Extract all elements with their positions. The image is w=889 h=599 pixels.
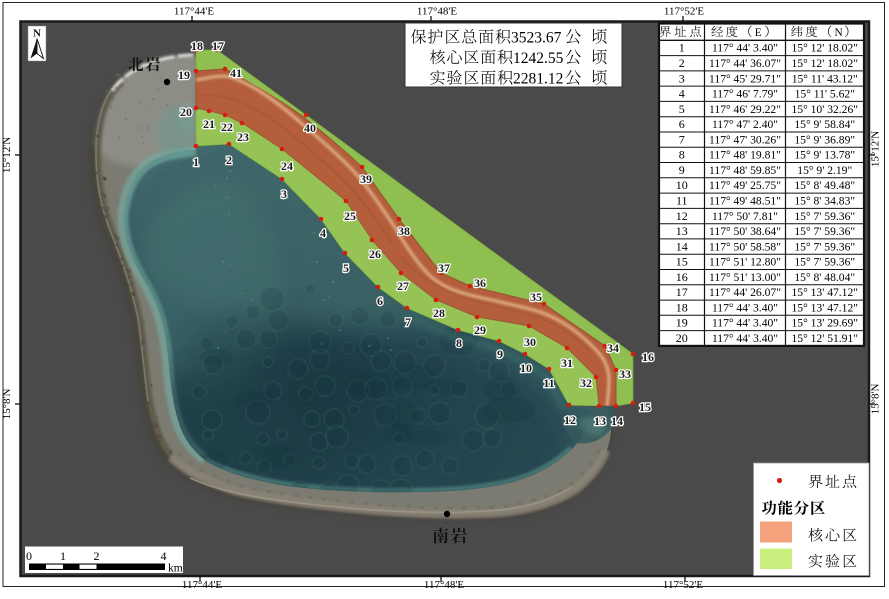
svg-text:15° 7' 59.36": 15° 7' 59.36" xyxy=(794,256,855,269)
svg-text:29: 29 xyxy=(474,323,486,337)
svg-text:15° 8' 49.48": 15° 8' 49.48" xyxy=(794,179,855,192)
svg-text:9: 9 xyxy=(497,347,503,361)
svg-text:19: 19 xyxy=(676,316,688,330)
svg-text:1: 1 xyxy=(679,41,685,55)
svg-text:15° 9' 36.89": 15° 9' 36.89" xyxy=(794,133,855,146)
svg-text:10: 10 xyxy=(676,178,688,192)
svg-text:2281.12: 2281.12 xyxy=(513,71,563,88)
svg-text:32: 32 xyxy=(580,376,592,390)
svg-text:117°48'E: 117°48'E xyxy=(424,579,464,591)
svg-text:27: 27 xyxy=(397,279,409,293)
svg-text:15° 13' 47.12": 15° 13' 47.12" xyxy=(791,286,858,299)
svg-text:15° 9' 58.84": 15° 9' 58.84" xyxy=(794,118,855,131)
svg-text:15° 13' 47.12": 15° 13' 47.12" xyxy=(791,302,858,315)
svg-text:10: 10 xyxy=(520,361,532,375)
svg-text:35: 35 xyxy=(530,290,542,304)
svg-text:26: 26 xyxy=(369,247,381,261)
svg-text:2: 2 xyxy=(226,153,232,167)
svg-text:7: 7 xyxy=(679,132,685,146)
svg-text:15°12'N: 15°12'N xyxy=(870,131,882,167)
svg-text:15: 15 xyxy=(639,400,651,414)
svg-text:38: 38 xyxy=(398,224,410,238)
svg-text:E: E xyxy=(755,27,762,39)
svg-text:N: N xyxy=(835,27,843,39)
svg-text:3523.67: 3523.67 xyxy=(511,30,562,47)
svg-text:19: 19 xyxy=(178,68,190,82)
svg-text:8: 8 xyxy=(456,336,462,350)
svg-text:117° 44' 26.07": 117° 44' 26.07" xyxy=(709,286,781,299)
svg-text:23: 23 xyxy=(237,130,249,144)
svg-text:15° 12' 18.02": 15° 12' 18.02" xyxy=(791,42,858,55)
svg-text:36: 36 xyxy=(474,276,486,290)
svg-text:2: 2 xyxy=(94,549,100,563)
svg-text:15° 9' 2.19": 15° 9' 2.19" xyxy=(797,164,852,177)
svg-text:14: 14 xyxy=(611,414,623,428)
svg-text:24: 24 xyxy=(281,159,293,173)
svg-text:117° 45' 29.71": 117° 45' 29.71" xyxy=(709,72,781,85)
svg-text:15° 10' 32.26": 15° 10' 32.26" xyxy=(791,103,858,116)
svg-text:15° 9' 13.78": 15° 9' 13.78" xyxy=(794,149,855,162)
svg-text:3: 3 xyxy=(679,71,685,85)
svg-text:15° 7' 59.36": 15° 7' 59.36" xyxy=(794,225,855,238)
svg-text:117° 49' 48.51": 117° 49' 48.51" xyxy=(709,195,781,208)
svg-text:20: 20 xyxy=(676,331,688,345)
svg-text:6: 6 xyxy=(377,294,383,308)
svg-text:15°8'N: 15°8'N xyxy=(870,384,882,415)
svg-text:km: km xyxy=(168,563,183,575)
svg-text:4: 4 xyxy=(161,549,167,563)
svg-text:117° 46' 7.79": 117° 46' 7.79" xyxy=(712,88,778,101)
svg-text:0: 0 xyxy=(26,549,32,563)
svg-text:4: 4 xyxy=(320,226,326,240)
svg-text:117° 51' 12.80": 117° 51' 12.80" xyxy=(709,256,781,269)
svg-text:117°52'E: 117°52'E xyxy=(664,6,704,18)
svg-text:15° 8' 48.04": 15° 8' 48.04" xyxy=(794,271,855,284)
svg-text:22: 22 xyxy=(221,120,233,134)
svg-text:117°52'E: 117°52'E xyxy=(663,579,703,591)
svg-text:15° 7' 59.36": 15° 7' 59.36" xyxy=(794,210,855,223)
svg-text:16: 16 xyxy=(676,270,688,284)
svg-text:5: 5 xyxy=(343,261,349,275)
svg-text:15° 11' 5.62": 15° 11' 5.62" xyxy=(795,88,856,101)
svg-text:117°44'E: 117°44'E xyxy=(182,579,222,591)
svg-text:117° 44' 3.40": 117° 44' 3.40" xyxy=(712,317,778,330)
svg-text:4: 4 xyxy=(679,87,685,101)
svg-text:21: 21 xyxy=(203,117,215,131)
svg-text:15°12'N: 15°12'N xyxy=(1,137,13,173)
svg-text:16: 16 xyxy=(642,350,654,364)
svg-text:15° 11' 43.12": 15° 11' 43.12" xyxy=(792,72,858,85)
svg-text:18: 18 xyxy=(676,301,688,315)
svg-text:11: 11 xyxy=(676,194,688,208)
svg-text:117° 44' 3.40": 117° 44' 3.40" xyxy=(712,302,778,315)
svg-text:117° 49' 25.75": 117° 49' 25.75" xyxy=(709,179,781,192)
svg-text:3: 3 xyxy=(281,187,287,201)
svg-text:25: 25 xyxy=(344,209,356,223)
svg-text:33: 33 xyxy=(619,367,631,381)
svg-text:117° 50' 58.58": 117° 50' 58.58" xyxy=(709,240,781,253)
svg-text:7: 7 xyxy=(405,315,411,329)
svg-text:12: 12 xyxy=(564,413,576,427)
svg-text:41: 41 xyxy=(230,66,242,80)
svg-text:6: 6 xyxy=(679,117,685,131)
svg-text:15° 12' 51.91": 15° 12' 51.91" xyxy=(791,332,858,345)
svg-text:117° 50' 38.64": 117° 50' 38.64" xyxy=(709,225,781,238)
svg-text:40: 40 xyxy=(304,121,316,135)
svg-text:2: 2 xyxy=(679,56,685,70)
svg-text:15° 8' 34.83": 15° 8' 34.83" xyxy=(794,195,855,208)
svg-text:117° 51' 13.00": 117° 51' 13.00" xyxy=(709,271,781,284)
svg-text:117° 47' 30.26": 117° 47' 30.26" xyxy=(709,133,781,146)
svg-text:1: 1 xyxy=(193,155,199,169)
svg-text:39: 39 xyxy=(360,172,372,186)
svg-text:14: 14 xyxy=(676,239,688,253)
svg-text:15° 7' 59.36": 15° 7' 59.36" xyxy=(794,240,855,253)
svg-text:117°44'E: 117°44'E xyxy=(174,6,214,18)
svg-text:117° 48' 59.85": 117° 48' 59.85" xyxy=(709,164,781,177)
svg-text:13: 13 xyxy=(676,224,688,238)
svg-text:20: 20 xyxy=(180,105,192,119)
svg-text:117°48'E: 117°48'E xyxy=(417,6,457,18)
svg-text:8: 8 xyxy=(679,148,685,162)
svg-text:117° 44' 36.07": 117° 44' 36.07" xyxy=(709,57,781,70)
svg-text:15: 15 xyxy=(676,255,688,269)
svg-text:117° 44' 3.40": 117° 44' 3.40" xyxy=(712,332,778,345)
svg-text:15°8'N: 15°8'N xyxy=(1,389,13,420)
svg-text:17: 17 xyxy=(676,285,688,299)
svg-text:117° 46' 29.22": 117° 46' 29.22" xyxy=(709,103,781,116)
svg-text:28: 28 xyxy=(433,306,445,320)
svg-text:12: 12 xyxy=(676,209,688,223)
svg-text:117° 50' 7.81": 117° 50' 7.81" xyxy=(712,210,778,223)
svg-text:37: 37 xyxy=(438,261,450,275)
svg-text:13: 13 xyxy=(594,414,606,428)
svg-text:18: 18 xyxy=(191,39,203,53)
svg-text:117° 44' 3.40": 117° 44' 3.40" xyxy=(712,42,778,55)
svg-text:34: 34 xyxy=(607,341,619,355)
svg-text:1242.55: 1242.55 xyxy=(513,50,564,67)
svg-text:30: 30 xyxy=(524,335,536,349)
svg-text:15° 13' 29.69": 15° 13' 29.69" xyxy=(791,317,858,330)
svg-text:9: 9 xyxy=(679,163,685,177)
svg-text:17: 17 xyxy=(212,39,224,53)
svg-text:117° 47' 2.40": 117° 47' 2.40" xyxy=(712,118,778,131)
svg-text:N: N xyxy=(33,28,41,40)
svg-text:117° 48' 19.81": 117° 48' 19.81" xyxy=(709,149,781,162)
svg-text:11: 11 xyxy=(543,376,554,390)
svg-text:5: 5 xyxy=(679,102,685,116)
svg-text:31: 31 xyxy=(561,356,573,370)
svg-text:15° 12' 18.02": 15° 12' 18.02" xyxy=(791,57,858,70)
svg-text:1: 1 xyxy=(60,549,66,563)
